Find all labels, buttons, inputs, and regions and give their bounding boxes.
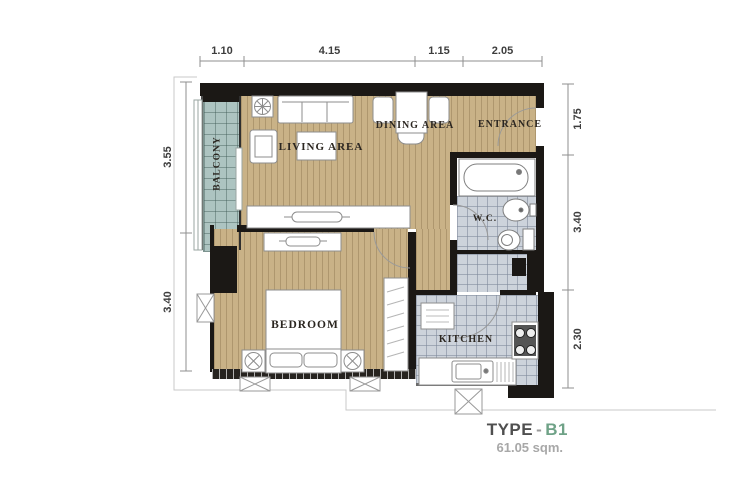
- bathtub: [459, 159, 535, 196]
- unit-type-value: B1: [545, 420, 568, 439]
- nightstand-left: [242, 350, 265, 372]
- room-label-bedroom: BEDROOM: [255, 319, 355, 332]
- room-label-dining: DINING AREA: [365, 119, 465, 132]
- plan-drawing: [0, 0, 750, 500]
- pillow-right: [304, 353, 337, 367]
- fridge: [421, 303, 454, 329]
- room-label-entrance: ENTRANCE: [460, 118, 560, 131]
- floor-plan: 1.10 4.15 1.15 2.05 3.55 3.40 1.75 3.40 …: [0, 0, 750, 500]
- plant-icon: [252, 96, 273, 117]
- dim-top-1: 1.10: [200, 44, 244, 58]
- room-label-wc: W.C.: [455, 213, 515, 226]
- dim-top-4: 2.05: [463, 44, 542, 58]
- sofa: [278, 96, 353, 123]
- unit-type-line: TYPE-B1: [400, 420, 568, 440]
- kitchen-counter: [419, 358, 516, 385]
- toilet: [498, 229, 534, 250]
- room-label-balcony: BALCONY: [212, 124, 225, 204]
- unit-type-label: TYPE: [487, 420, 533, 439]
- bedroom-door-arc: [374, 232, 410, 268]
- unit-type-separator: -: [533, 420, 545, 439]
- nightstand-right: [341, 350, 364, 372]
- dim-top-2: 4.15: [244, 44, 415, 58]
- ac-unit-kitchen: [455, 389, 482, 414]
- dining-set: [373, 92, 449, 144]
- dim-left-1: 3.55: [161, 137, 175, 177]
- pillow-left: [270, 353, 302, 367]
- dim-right-1: 1.75: [571, 99, 585, 139]
- tv-console-bedroom: [264, 233, 341, 251]
- window-box-left: [197, 294, 214, 322]
- dim-right-3: 2.30: [571, 319, 585, 359]
- tv-console-living: [247, 206, 410, 228]
- kitchen-door-arc: [457, 295, 500, 338]
- ac-unit-2: [350, 377, 380, 391]
- unit-area: 61.05 sqm.: [400, 440, 563, 455]
- room-label-living: LIVING AREA: [261, 141, 381, 154]
- dim-left-2: 3.40: [161, 282, 175, 322]
- dim-top-3: 1.15: [415, 44, 463, 58]
- wardrobe: [384, 278, 408, 371]
- dim-right-2: 3.40: [571, 202, 585, 242]
- room-label-kitchen: KITCHEN: [416, 333, 516, 346]
- ac-unit-1: [240, 377, 270, 391]
